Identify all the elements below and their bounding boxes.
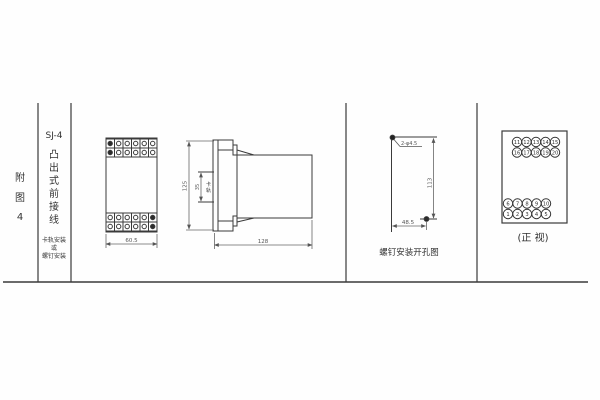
figure-label: 附 图 4 bbox=[15, 171, 25, 223]
type-label-char: 前 bbox=[49, 187, 59, 200]
terminal-number: 11 bbox=[514, 140, 521, 146]
terminal-number: 14 bbox=[542, 140, 549, 146]
figure-label-char: 图 bbox=[15, 192, 25, 204]
drill-height-dim-label: 113 bbox=[428, 177, 434, 188]
type-label-char: 式 bbox=[49, 174, 59, 187]
model-label: SJ-4 bbox=[45, 131, 62, 141]
height-dim-label: 125 bbox=[183, 180, 189, 191]
bottom-terminal-strip bbox=[106, 213, 157, 231]
rail-label-char: 轨 bbox=[206, 187, 211, 194]
terminal-number: 17 bbox=[523, 150, 530, 156]
terminal-number: 5 bbox=[544, 212, 547, 218]
drill-view-caption: 螺钉安装开孔图 bbox=[379, 247, 439, 258]
sheet-frame bbox=[3, 103, 588, 282]
terminal-number: 19 bbox=[542, 150, 549, 156]
terminal-number: 9 bbox=[535, 201, 538, 207]
type-label-char: 出 bbox=[49, 161, 59, 174]
terminal-view: 11 12 13 14 15 16 17 18 19 20 6 7 8 9 10… bbox=[502, 131, 567, 244]
terminal-number: 13 bbox=[533, 140, 540, 146]
width-dim-label: 60.5 bbox=[125, 238, 138, 244]
terminal-number: 8 bbox=[525, 201, 528, 207]
side-view: 125 35 卡 轨 128 bbox=[183, 140, 313, 249]
figure-label-char: 4 bbox=[17, 212, 23, 223]
terminal-number: 2 bbox=[516, 212, 519, 218]
holes-label: 2-φ4.5 bbox=[401, 141, 417, 147]
terminal-number: 3 bbox=[525, 212, 528, 218]
technical-drawing: 附 图 4 SJ-4 凸 出 式 前 接 线 卡轨安装 或 螺钉安装 bbox=[0, 0, 600, 400]
figure-label-char: 附 bbox=[15, 171, 25, 184]
depth-dim-label: 128 bbox=[258, 239, 269, 245]
drill-view: 2-φ4.5 113 48.5 螺钉安装开孔图 bbox=[379, 135, 439, 258]
type-label-char: 接 bbox=[49, 200, 59, 213]
mounting-note-line: 卡轨安装 bbox=[42, 236, 66, 244]
terminal-number: 16 bbox=[514, 150, 521, 156]
terminal-number: 6 bbox=[506, 201, 509, 207]
title-column: SJ-4 凸 出 式 前 接 线 卡轨安装 或 螺钉安装 bbox=[42, 131, 66, 260]
type-label-char: 线 bbox=[49, 213, 59, 226]
terminal-number: 7 bbox=[516, 201, 519, 207]
terminal-number: 20 bbox=[552, 150, 559, 156]
terminal-number: 18 bbox=[533, 150, 540, 156]
top-terminal-strip bbox=[106, 139, 157, 157]
terminal-number: 1 bbox=[506, 212, 509, 218]
mounting-hole bbox=[390, 135, 395, 140]
drawing-sheet: 附 图 4 SJ-4 凸 出 式 前 接 线 卡轨安装 或 螺钉安装 bbox=[0, 0, 600, 400]
rail-label-char: 卡 bbox=[206, 181, 211, 188]
mounting-note-line: 或 bbox=[51, 244, 57, 252]
rail-dim-label: 35 bbox=[195, 184, 201, 190]
terminal-number: 12 bbox=[523, 140, 530, 146]
mounting-note-line: 螺钉安装 bbox=[42, 252, 66, 260]
terminal-view-caption: (正 视) bbox=[518, 231, 549, 244]
terminal-number: 15 bbox=[552, 140, 559, 146]
outline-view: 60.5 bbox=[106, 138, 157, 248]
drill-width-dim-label: 48.5 bbox=[402, 220, 415, 226]
type-label-char: 凸 bbox=[49, 149, 59, 161]
terminal-number: 10 bbox=[543, 201, 550, 207]
